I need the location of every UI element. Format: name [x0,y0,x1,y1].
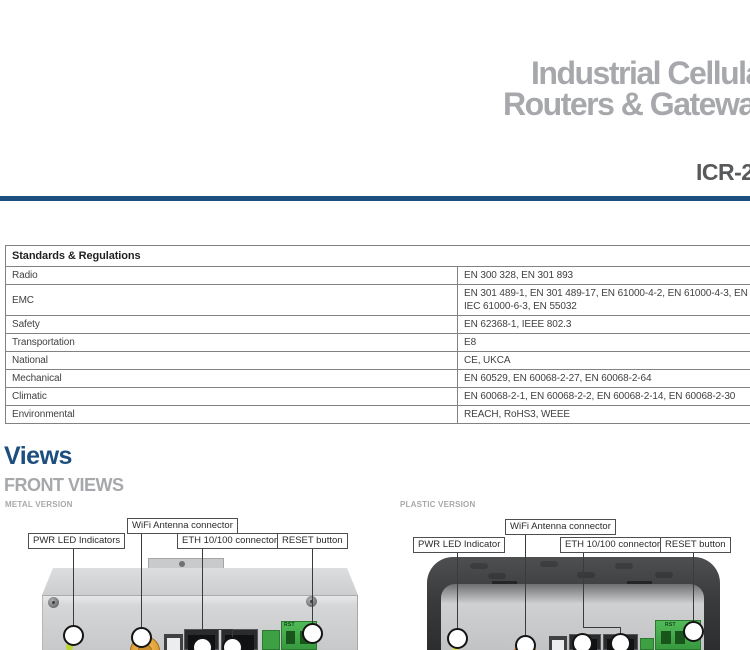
vent-mark [488,573,506,579]
callout-line [202,629,233,630]
vent-mark [577,572,595,578]
table-row: Mechanical EN 60529, EN 60068-2-27, EN 6… [6,370,750,388]
views-section-title: Views [4,444,72,469]
row-value: EN 301 489-1, EN 301 489-17, EN 61000-4-… [458,285,750,316]
row-label: Climatic [6,388,458,406]
doc-title-line2: Routers & Gateways [503,88,750,120]
product-model: ICR-27 [696,161,750,184]
callout-marker-reset [683,621,704,642]
callout-line [525,533,526,635]
row-value: E8 [458,334,750,352]
vent-mark [655,572,673,578]
callout-line [73,548,74,625]
row-label: Mechanical [6,370,458,388]
terminal-block-small [262,630,280,650]
row-label: National [6,352,458,370]
plastic-version-label: PLASTIC VERSION [400,501,475,509]
rst-label: RST [284,623,295,628]
row-label: Transportation [6,334,458,352]
front-views-subtitle: FRONT VIEWS [4,476,124,494]
callout-line [141,532,142,627]
callout-line [583,627,621,628]
callout-line [457,550,458,628]
row-value: REACH, RoHS3, WEEE [458,406,750,424]
table-row: Safety EN 62368-1, IEEE 802.3 [6,316,750,334]
callout-line [693,550,694,621]
table-row: Climatic EN 60068-2-1, EN 60068-2-2, EN … [6,388,750,406]
callout-eth-connectors: ETH 10/100 connectors [177,533,287,549]
callout-marker-eth2 [610,633,631,650]
doc-title-line1: Industrial Cellular [531,57,750,89]
callout-pwr-led: PWR LED Indicator [413,537,505,553]
table-row: Transportation E8 [6,334,750,352]
row-label: EMC [6,285,458,316]
callout-wifi-antenna: WiFi Antenna connector [127,518,238,534]
callout-marker-eth1 [572,633,593,650]
callout-marker-pwr [447,628,468,649]
row-value: CE, UKCA [458,352,750,370]
callout-reset-button: RESET button [277,533,348,549]
row-value: EN 300 328, EN 301 893 [458,267,750,285]
callout-line [232,629,233,637]
screw-icon [179,561,185,567]
vent-mark [615,563,633,569]
row-label: Safety [6,316,458,334]
row-value: EN 62368-1, IEEE 802.3 [458,316,750,334]
terminal-slot [661,631,671,644]
callout-marker-pwr [63,625,84,646]
table-row: Radio EN 300 328, EN 301 893 [6,267,750,285]
chassis-top-face [42,568,358,595]
table-title: Standards & Regulations [6,246,750,267]
callout-eth-connectors: ETH 10/100 connectors [560,537,670,553]
terminal-slot [286,631,295,644]
terminal-block-small [640,638,654,650]
vent-mark [470,563,488,569]
row-value: EN 60529, EN 60068-2-27, EN 60068-2-64 [458,370,750,388]
callout-marker-reset [302,623,323,644]
header-divider-rule [0,196,750,201]
table-row: Environmental REACH, RoHS3, WEEE [6,406,750,424]
callout-line [312,548,313,623]
metal-version-label: METAL VERSION [5,501,73,509]
table-row: National CE, UKCA [6,352,750,370]
callout-pwr-led: PWR LED Indicators [28,533,125,549]
row-value: EN 60068-2-1, EN 60068-2-2, EN 60068-2-1… [458,388,750,406]
callout-wifi-antenna: WiFi Antenna connector [505,519,616,535]
usb-port-inner [552,640,564,650]
usb-port-inner [167,638,180,650]
table-row: EMC EN 301 489-1, EN 301 489-17, EN 6100… [6,285,750,316]
callout-marker-wifi [131,627,152,648]
table-header-row: Standards & Regulations [6,246,750,267]
datasheet-page: Industrial Cellular Routers & Gateways I… [0,0,750,650]
row-label: Environmental [6,406,458,424]
callout-marker-wifi [515,635,536,650]
rst-label: RST [665,623,676,628]
row-label: Radio [6,267,458,285]
callout-line [202,548,203,629]
callout-line [583,550,584,627]
callout-reset-button: RESET button [660,537,731,553]
standards-regulations-table: Standards & Regulations Radio EN 300 328… [5,245,750,424]
vent-mark [540,561,558,567]
screw-icon [48,597,59,608]
